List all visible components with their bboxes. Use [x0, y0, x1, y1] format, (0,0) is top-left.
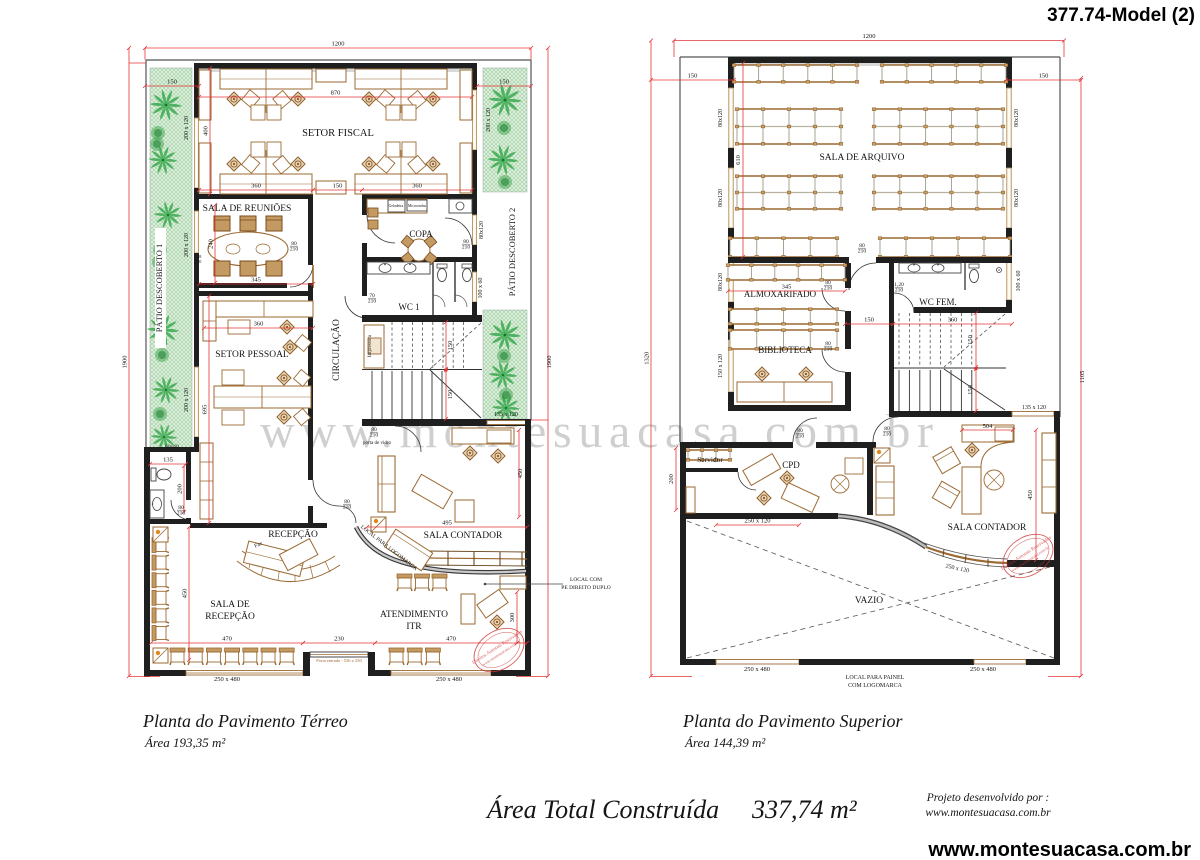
svg-text:100 x 60: 100 x 60: [478, 278, 484, 299]
svg-text:200 x 120: 200 x 120: [486, 108, 492, 132]
svg-text:210: 210: [858, 249, 867, 255]
svg-text:210: 210: [343, 505, 352, 511]
svg-text:200 x 120: 200 x 120: [184, 388, 190, 412]
svg-text:60x60: 60x60: [165, 444, 179, 450]
svg-text:Microondas: Microondas: [408, 204, 427, 208]
svg-text:470: 470: [446, 636, 456, 643]
svg-text:1320: 1320: [644, 352, 651, 365]
svg-text:200: 200: [668, 474, 675, 484]
svg-text:210: 210: [368, 299, 377, 305]
svg-text:Geladeira: Geladeira: [389, 204, 404, 208]
svg-text:337,74 m²: 337,74 m²: [751, 795, 858, 824]
svg-text:240: 240: [208, 239, 215, 249]
svg-text:200 x 120: 200 x 120: [184, 116, 190, 140]
svg-text:COM LOGOMARCA: COM LOGOMARCA: [848, 683, 903, 689]
svg-text:150: 150: [967, 335, 974, 345]
svg-text:360: 360: [948, 317, 958, 324]
svg-text:LOCAL COM: LOCAL COM: [570, 577, 602, 583]
svg-text:1200: 1200: [863, 33, 876, 40]
svg-text:150: 150: [167, 79, 177, 86]
svg-text:1105: 1105: [1079, 371, 1086, 384]
svg-text:250 x 480: 250 x 480: [214, 676, 240, 683]
svg-text:400: 400: [203, 126, 210, 136]
svg-text:CPD: CPD: [782, 460, 800, 470]
svg-text:250 x 480: 250 x 480: [970, 666, 996, 673]
svg-text:695: 695: [202, 405, 209, 415]
svg-text:80x120: 80x120: [1014, 189, 1020, 207]
svg-text:377.74-Model (2): 377.74-Model (2): [1047, 5, 1195, 26]
svg-text:495: 495: [442, 520, 452, 527]
svg-text:VAZIO: VAZIO: [855, 596, 883, 606]
svg-text:210: 210: [370, 433, 379, 439]
svg-text:RECEPÇÃO: RECEPÇÃO: [268, 528, 318, 540]
svg-text:210: 210: [195, 259, 203, 264]
svg-text:PÁTIO DESCOBERTO 1: PÁTIO DESCOBERTO 1: [154, 244, 164, 333]
svg-text:210: 210: [824, 286, 833, 292]
svg-text:870: 870: [331, 90, 341, 97]
svg-text:345: 345: [251, 277, 261, 284]
svg-text:504: 504: [983, 423, 994, 430]
svg-text:1200: 1200: [332, 41, 345, 48]
svg-text:80x120: 80x120: [718, 109, 724, 127]
svg-text:150: 150: [333, 183, 343, 190]
svg-text:210: 210: [462, 245, 471, 251]
svg-text:150 x 120: 150 x 120: [718, 354, 724, 378]
svg-text:300: 300: [509, 613, 516, 623]
svg-text:450: 450: [182, 589, 189, 599]
svg-text:345: 345: [782, 284, 792, 291]
svg-text:150: 150: [864, 317, 874, 324]
svg-text:CIRCULAÇÃO: CIRCULAÇÃO: [330, 319, 342, 381]
svg-text:WC 1: WC 1: [398, 302, 419, 312]
svg-text:150: 150: [1039, 73, 1049, 80]
svg-text:COPA: COPA: [409, 229, 433, 239]
svg-text:250 x 480: 250 x 480: [436, 676, 462, 683]
svg-text:150: 150: [967, 385, 974, 395]
svg-text:ITR: ITR: [406, 622, 422, 632]
svg-text:SETOR PESSOAL: SETOR PESSOAL: [215, 350, 289, 360]
svg-text:250 x 120: 250 x 120: [745, 518, 771, 525]
svg-text:WC FEM.: WC FEM.: [919, 297, 957, 307]
svg-text:135: 135: [163, 457, 173, 464]
svg-text:250 x 480: 250 x 480: [744, 666, 770, 673]
svg-text:www.montesuacasa.com.br: www.montesuacasa.com.br: [260, 405, 936, 458]
svg-text:135 x 120: 135 x 120: [1022, 405, 1046, 411]
svg-text:PE DIREITO DUPLO: PE DIREITO DUPLO: [561, 585, 610, 591]
svg-text:80x120: 80x120: [1014, 109, 1020, 127]
svg-text:150: 150: [499, 79, 509, 86]
svg-text:210: 210: [290, 247, 299, 253]
svg-text:Planta do Pavimento Térreo: Planta do Pavimento Térreo: [142, 711, 348, 731]
svg-text:80x120: 80x120: [718, 273, 724, 291]
svg-text:SALA CONTADOR: SALA CONTADOR: [948, 523, 1027, 533]
svg-text:80x120: 80x120: [479, 221, 485, 239]
svg-text:450: 450: [1027, 490, 1034, 500]
svg-text:100 x 60: 100 x 60: [1016, 271, 1022, 292]
svg-text:210: 210: [177, 511, 186, 517]
svg-text:Servidor: Servidor: [697, 455, 723, 464]
svg-text:450: 450: [517, 469, 524, 479]
svg-text:200 x 120: 200 x 120: [184, 233, 190, 257]
svg-text:SALA DE: SALA DE: [210, 600, 250, 610]
svg-text:RECEPÇÃO: RECEPÇÃO: [205, 610, 255, 622]
svg-text:ALMOXARIFADO: ALMOXARIFADO: [744, 289, 817, 299]
svg-text:200: 200: [177, 484, 184, 494]
svg-text:210: 210: [824, 347, 833, 353]
svg-text:1900: 1900: [122, 356, 129, 369]
svg-text:ATENDIMENTO: ATENDIMENTO: [380, 610, 448, 620]
svg-text:SALA CONTADOR: SALA CONTADOR: [424, 531, 503, 541]
svg-text:360: 360: [254, 321, 264, 328]
svg-text:Área Total Construída: Área Total Construída: [485, 795, 719, 824]
svg-text:SETOR FISCAL: SETOR FISCAL: [302, 128, 374, 139]
svg-text:210: 210: [883, 432, 892, 438]
svg-text:610: 610: [735, 155, 742, 165]
svg-text:BIBLIOTECA: BIBLIOTECA: [758, 345, 812, 355]
svg-text:porta de vidro: porta de vidro: [363, 441, 392, 446]
svg-text:210: 210: [895, 288, 904, 294]
svg-text:1900: 1900: [546, 356, 553, 369]
svg-text:150: 150: [688, 73, 698, 80]
svg-text:150: 150: [447, 390, 454, 400]
svg-text:www.montesuacasa.com.br: www.montesuacasa.com.br: [927, 839, 1191, 860]
svg-text:Planta do Pavimento Superior: Planta do Pavimento Superior: [682, 711, 903, 731]
svg-text:210: 210: [796, 434, 805, 440]
svg-text:230: 230: [334, 636, 344, 643]
svg-text:470: 470: [222, 636, 232, 643]
svg-text:150: 150: [447, 341, 454, 351]
svg-text:Impressora: Impressora: [368, 334, 373, 357]
svg-text:80x120: 80x120: [718, 189, 724, 207]
svg-text:135 x 120: 135 x 120: [494, 412, 518, 418]
svg-text:Projeto desenvolvido por :: Projeto desenvolvido por :: [926, 792, 1050, 804]
svg-text:Área 193,35 m²: Área 193,35 m²: [144, 735, 226, 750]
svg-text:Porta entrada - 536 x 250: Porta entrada - 536 x 250: [316, 658, 362, 663]
svg-text:www.montesuacasa.com.br: www.montesuacasa.com.br: [925, 807, 1051, 819]
svg-text:SALA DE ARQUIVO: SALA DE ARQUIVO: [820, 153, 905, 163]
svg-text:Área 144,39 m²: Área 144,39 m²: [684, 735, 766, 750]
svg-text:LOCAL PARA PAINEL: LOCAL PARA PAINEL: [846, 675, 905, 681]
svg-text:PÁTIO DESCOBERTO 2: PÁTIO DESCOBERTO 2: [507, 208, 517, 297]
svg-text:360: 360: [412, 183, 422, 190]
svg-text:360: 360: [251, 183, 261, 190]
